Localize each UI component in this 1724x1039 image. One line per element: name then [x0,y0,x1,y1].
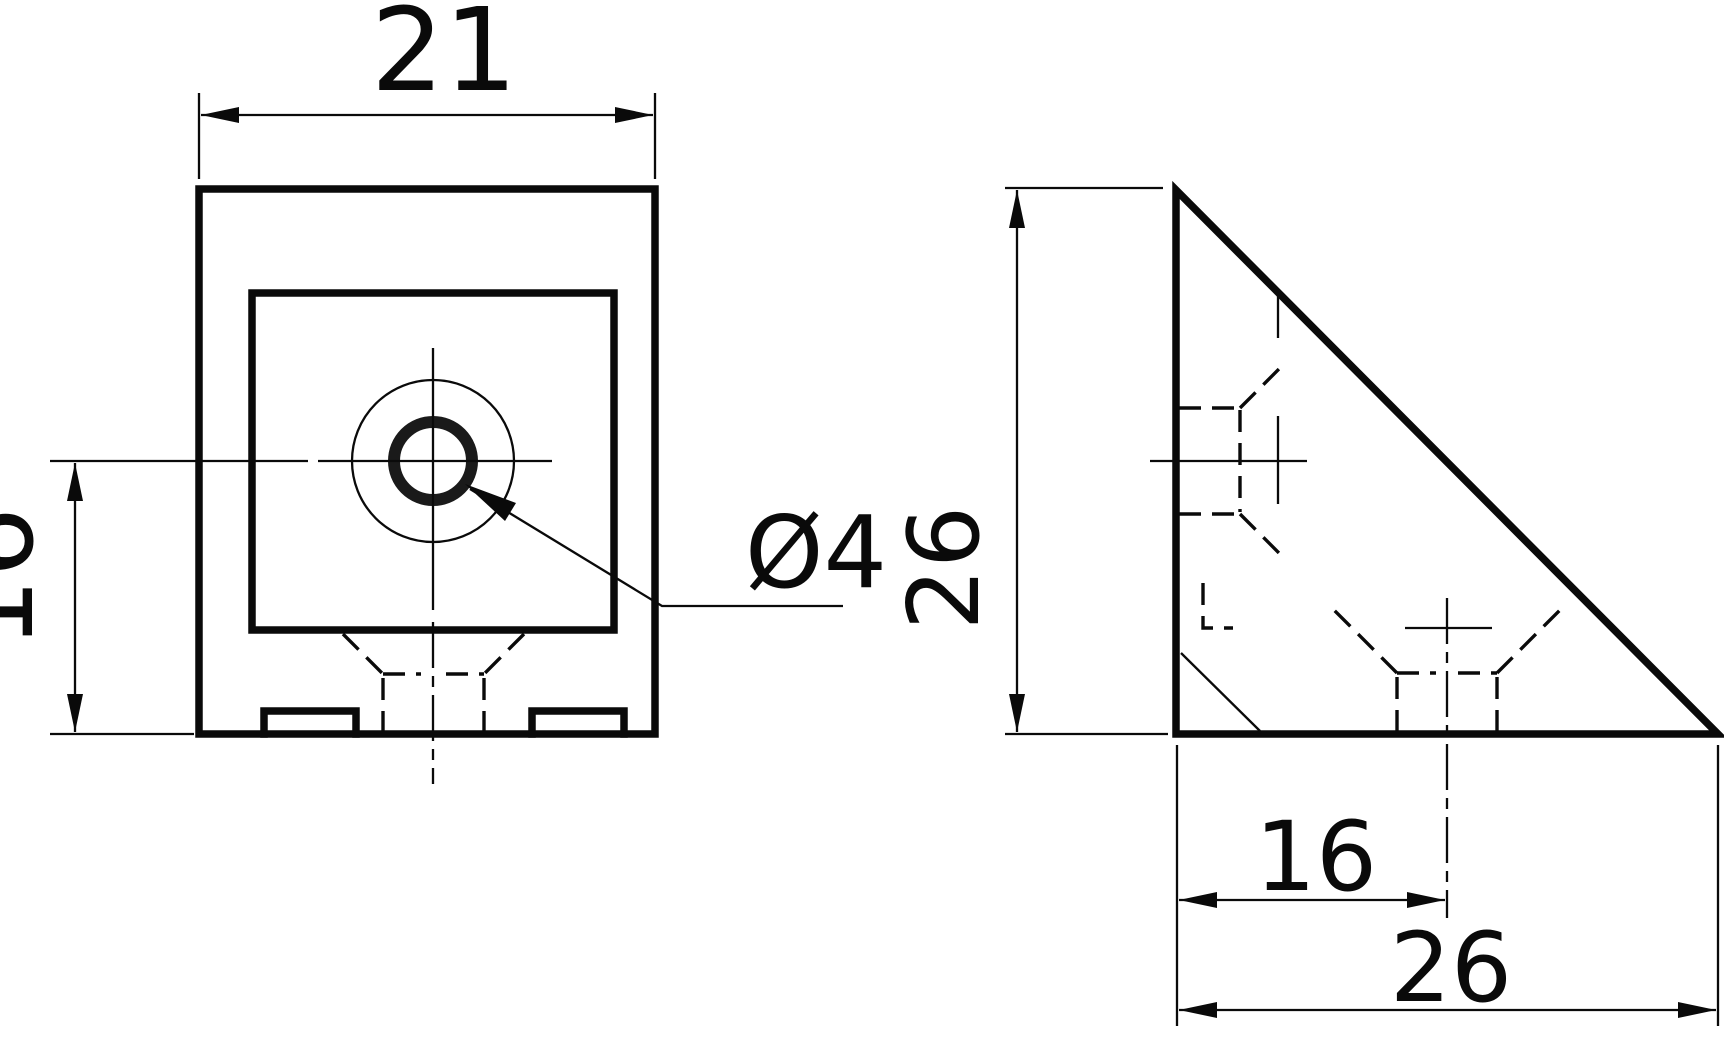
side-view-height-dimension-label: 26 [888,506,1002,631]
front-height-dimension: 16 [0,461,308,734]
arrow-down [67,694,83,732]
front-view: 21 16 Ø4 [0,0,887,784]
technical-drawing-canvas: 21 16 Ø4 [0,0,1724,1039]
arrow-up [1009,190,1025,228]
side-height-dimension: 26 [888,188,1168,734]
arrow-left [201,107,239,123]
side-chamfer-line [1181,653,1260,731]
arrow-left [1179,892,1217,908]
side-view-hole-offset-dimension-label: 16 [1255,801,1377,913]
front-view-center-to-bottom-dimension-label: 16 [0,507,59,650]
front-view-hole-diameter-label: Ø4 [745,494,887,611]
arrow-right [615,107,653,123]
arrow-up [67,463,83,501]
hidden-step [1203,583,1233,628]
arrow-left [1179,1002,1217,1018]
side-view: 26 16 26 [888,188,1718,1026]
arrow-right [1678,1002,1716,1018]
front-view-width-dimension-label: 21 [371,0,517,118]
side-view-base-dimension-label: 26 [1390,912,1512,1024]
front-width-dimension: 21 [199,0,655,179]
bracket-drawing-svg: 21 16 Ø4 [0,0,1724,1039]
front-hole-callout: Ø4 [465,484,887,611]
arrow-right [1407,892,1445,908]
arrow-down [1009,694,1025,732]
